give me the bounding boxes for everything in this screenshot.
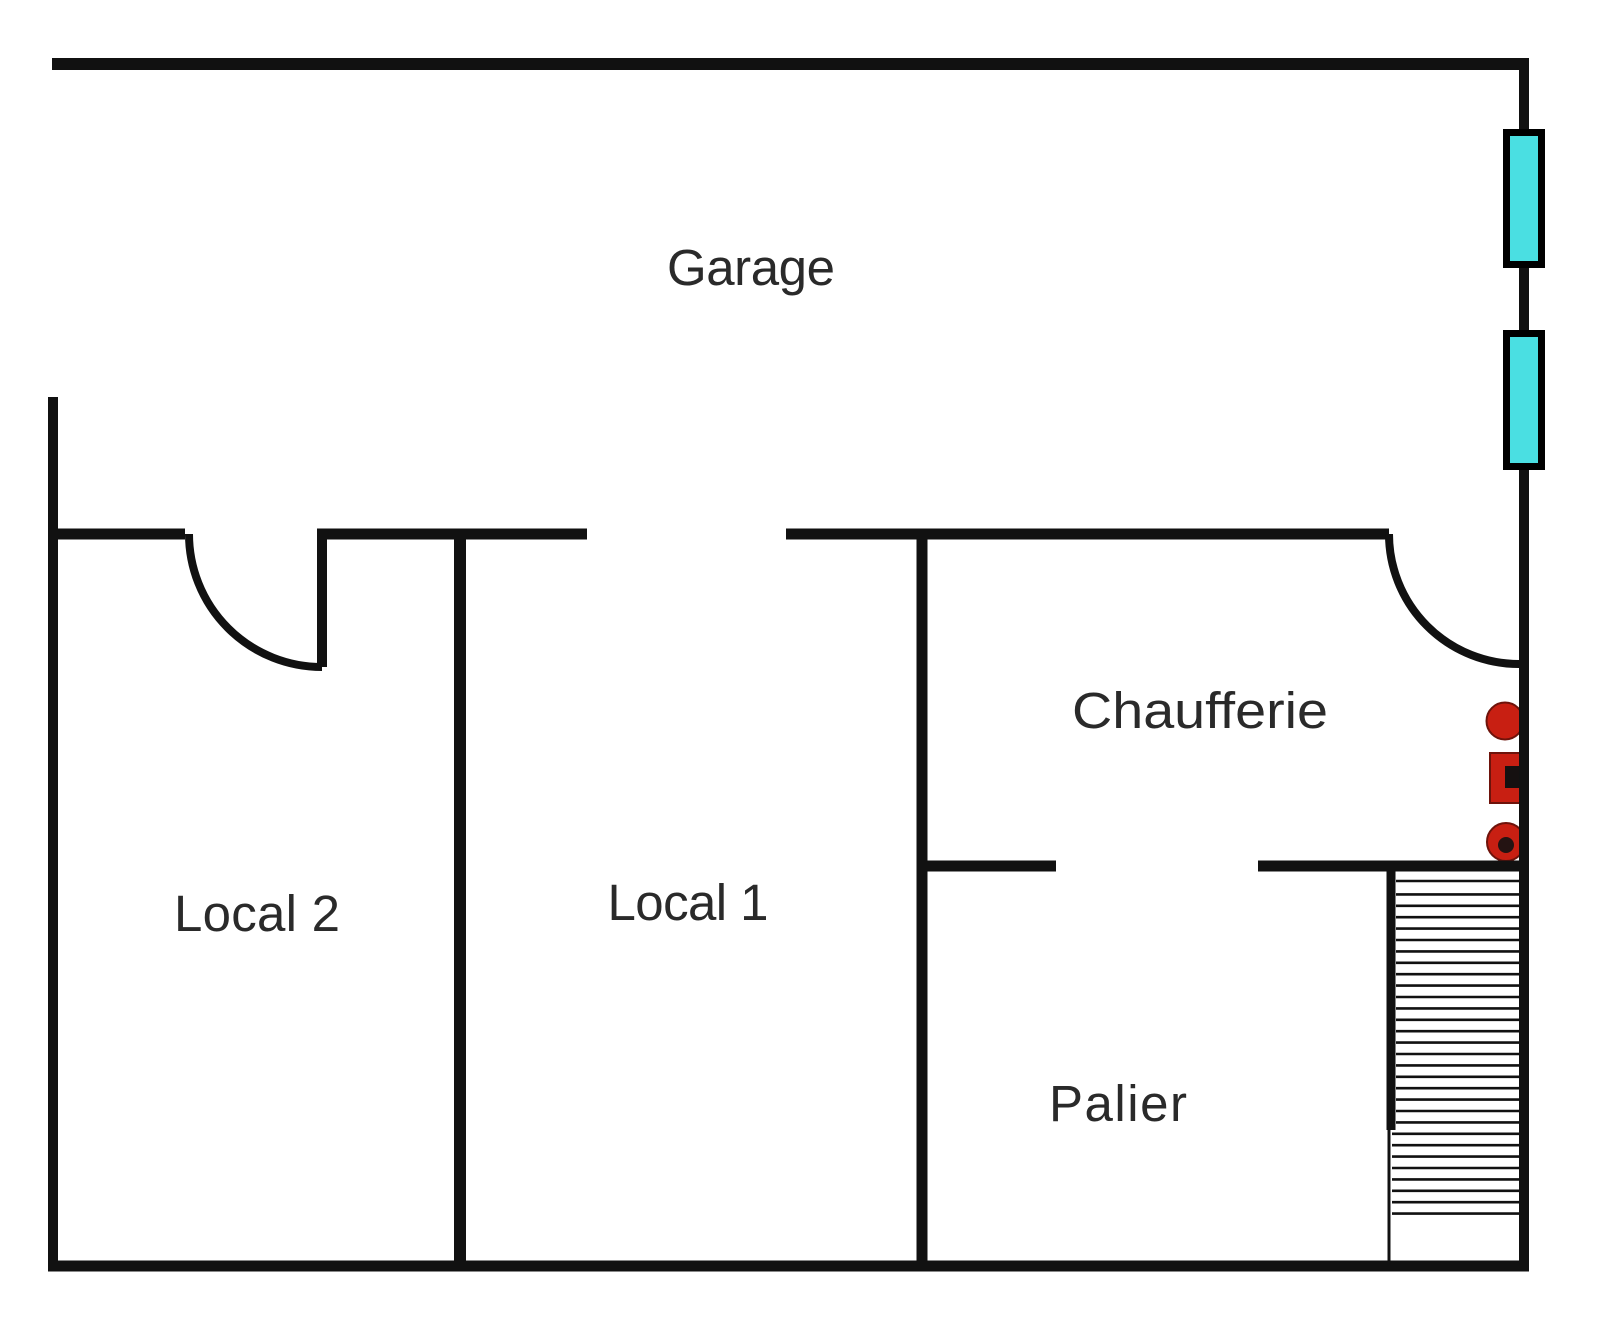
svg-text:Garage: Garage — [667, 239, 835, 296]
svg-text:Local 2: Local 2 — [174, 885, 340, 942]
svg-text:Chaufferie: Chaufferie — [1072, 682, 1328, 739]
svg-text:Local 1: Local 1 — [608, 874, 769, 931]
svg-text:Palier: Palier — [1049, 1075, 1187, 1132]
